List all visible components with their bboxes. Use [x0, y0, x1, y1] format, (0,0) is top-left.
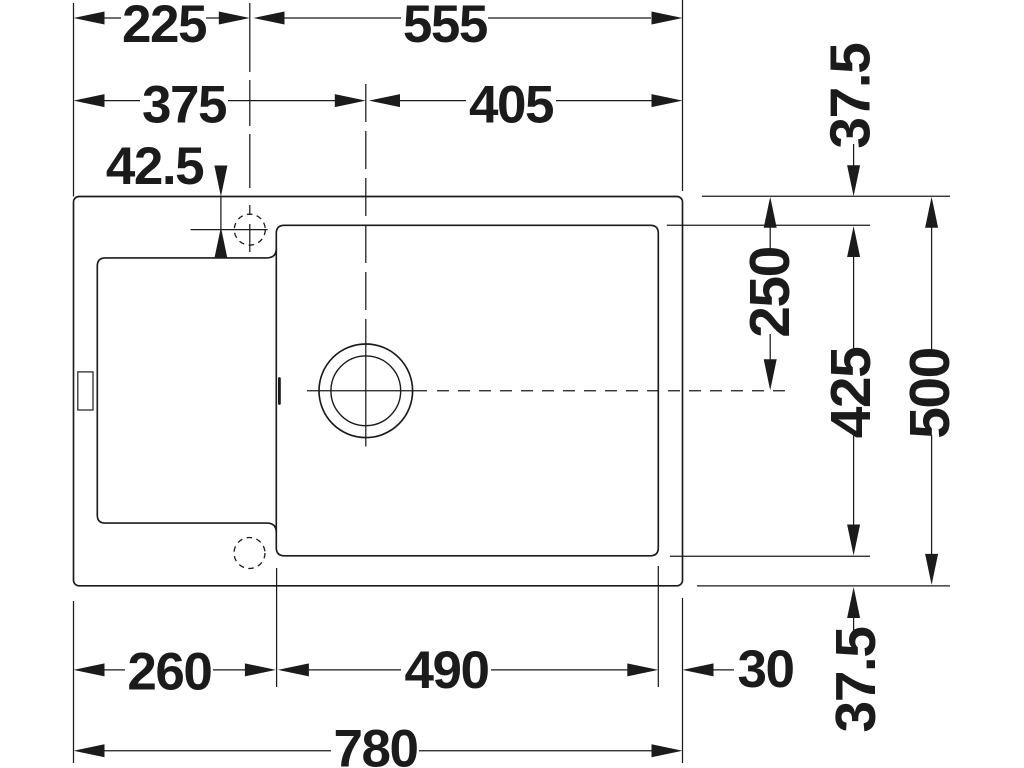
- svg-text:250: 250: [738, 247, 802, 338]
- svg-text:37.5: 37.5: [824, 627, 888, 733]
- svg-text:260: 260: [127, 642, 211, 701]
- svg-text:500: 500: [898, 348, 962, 439]
- svg-text:375: 375: [142, 75, 226, 134]
- svg-text:225: 225: [122, 0, 206, 54]
- svg-text:37.5: 37.5: [818, 43, 882, 149]
- svg-text:425: 425: [819, 347, 883, 438]
- svg-text:30: 30: [738, 640, 794, 699]
- svg-text:780: 780: [334, 720, 418, 768]
- svg-text:42.5: 42.5: [106, 137, 203, 196]
- svg-text:405: 405: [469, 75, 553, 134]
- svg-text:555: 555: [403, 0, 487, 54]
- svg-text:490: 490: [405, 641, 489, 700]
